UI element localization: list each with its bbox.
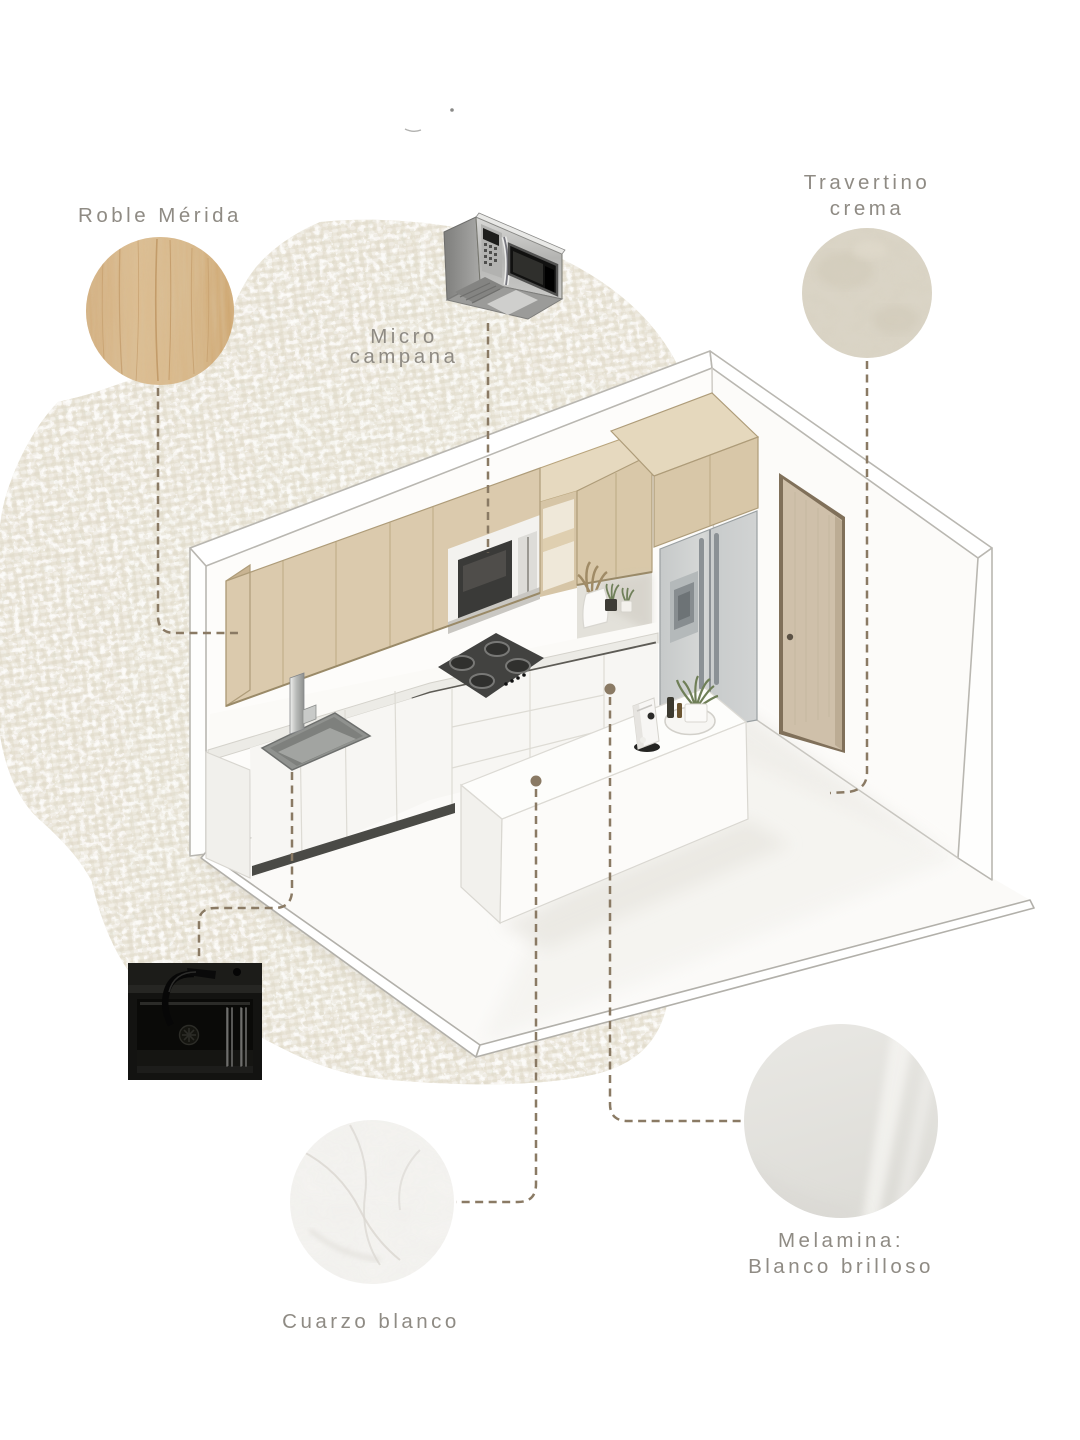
- svg-text:campana: campana: [350, 345, 459, 368]
- svg-text:Blanco brilloso: Blanco brilloso: [748, 1255, 934, 1278]
- svg-text:Melamina:: Melamina:: [778, 1229, 904, 1252]
- svg-text:crema: crema: [830, 197, 904, 220]
- svg-text:Cuarzo blanco: Cuarzo blanco: [282, 1310, 460, 1333]
- svg-text:Travertino: Travertino: [804, 171, 931, 194]
- svg-text:Roble Mérida: Roble Mérida: [78, 204, 242, 227]
